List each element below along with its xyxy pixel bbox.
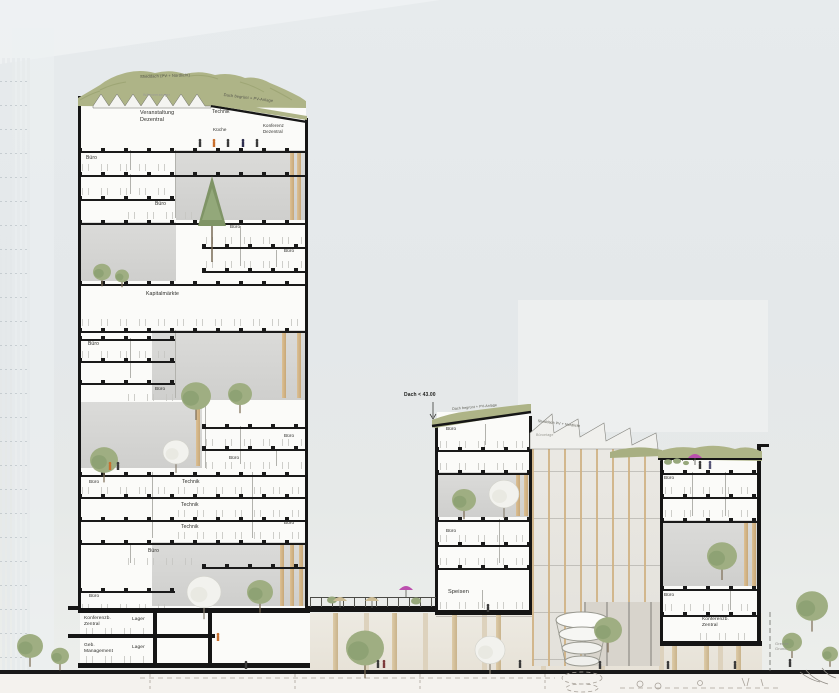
label-room-konferenzb-zentral-left: Konferenzb. Zentral bbox=[84, 616, 111, 628]
label-room-veranstaltung-dezentral: Veranstaltung Dezentral bbox=[140, 110, 174, 124]
label-room-buero-3: Büro bbox=[230, 224, 240, 230]
label-room-buero-11: Büro bbox=[148, 548, 159, 555]
label-roof-label-begruent-right: Dach begrünt + PV-Anlage bbox=[452, 403, 497, 412]
label-room-technik-1: Technik bbox=[182, 479, 200, 486]
label-annotation-dach-hoehe: Dach < 43.00 bbox=[404, 392, 436, 399]
label-facade-note: Büroetage bbox=[536, 433, 553, 438]
label-room-buero-14: Büro bbox=[446, 528, 456, 534]
label-room-buero-12: Büro bbox=[89, 593, 99, 599]
label-room-buero-1: Büro bbox=[86, 155, 97, 162]
label-roof-label-sheddach-left: Sheddach (PV + Nordlicht) bbox=[140, 72, 190, 79]
label-room-kueche: Küche bbox=[213, 127, 227, 133]
label-annotation-grenze: Grenze Grund. bbox=[775, 641, 789, 651]
label-room-technik-3: Technik bbox=[181, 524, 199, 531]
label-room-geb-management: Geb. Management bbox=[84, 643, 113, 655]
label-room-buero-15: Büro bbox=[664, 475, 674, 481]
label-attic-note: Wärmeerzeuger bbox=[143, 93, 170, 98]
labels-layer: Sheddach (PV + Nordlicht)Dach begrünt + … bbox=[0, 0, 839, 693]
label-room-lager-2: Lager bbox=[132, 645, 145, 651]
label-room-buero-5: Büro bbox=[88, 341, 99, 348]
label-room-lager-1: Lager bbox=[132, 617, 145, 623]
label-room-buero-6: Büro bbox=[155, 386, 165, 392]
label-room-konferenz-dezentral: Konferenz Dezentral bbox=[263, 123, 284, 134]
label-room-buero-2: Büro bbox=[155, 201, 166, 208]
label-room-buero-8: Büro bbox=[229, 455, 239, 461]
label-room-buero-7: Büro bbox=[284, 433, 294, 439]
label-room-buero-10: Büro bbox=[284, 520, 294, 526]
label-room-buero-16: Büro bbox=[664, 592, 674, 598]
label-room-buero-13: Büro bbox=[446, 426, 456, 432]
label-room-technik-top: Technik bbox=[212, 109, 230, 116]
section-drawing: Sheddach (PV + Nordlicht)Dach begrünt + … bbox=[0, 0, 839, 693]
label-room-buero-9: Büro bbox=[89, 479, 99, 485]
label-room-kapitalmaerkte: Kapitalmärkte bbox=[146, 291, 179, 298]
label-roof-label-sheddach-right: Sheddach PV + Nordlicht bbox=[537, 419, 580, 429]
label-room-buero-4: Büro bbox=[284, 248, 294, 254]
label-roof-label-begruent-left: Dach begrünt + PV-Anlage bbox=[223, 92, 273, 103]
label-room-konferenzb-zentral-right: Konferenzb. Zentral bbox=[702, 617, 729, 629]
label-room-technik-2: Technik bbox=[181, 502, 199, 509]
label-room-speisen: Speisen bbox=[448, 589, 469, 596]
